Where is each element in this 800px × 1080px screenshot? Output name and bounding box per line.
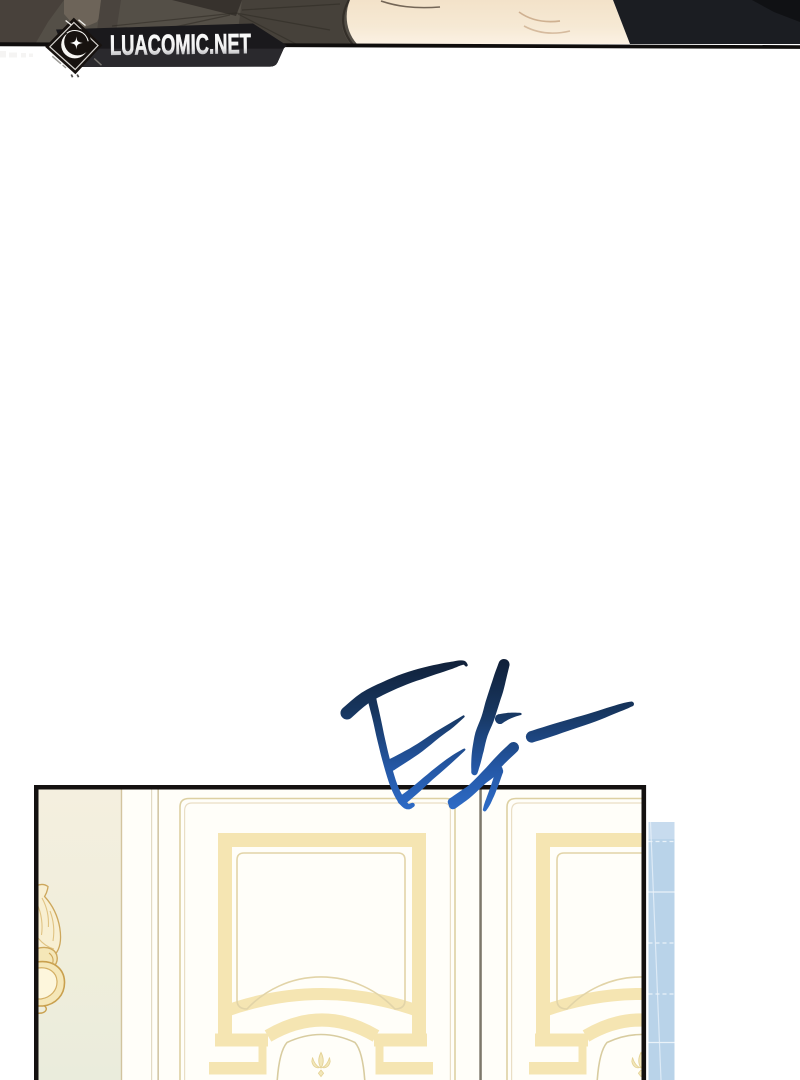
svg-text:LUACOMIC.NET: LUACOMIC.NET (110, 28, 251, 61)
